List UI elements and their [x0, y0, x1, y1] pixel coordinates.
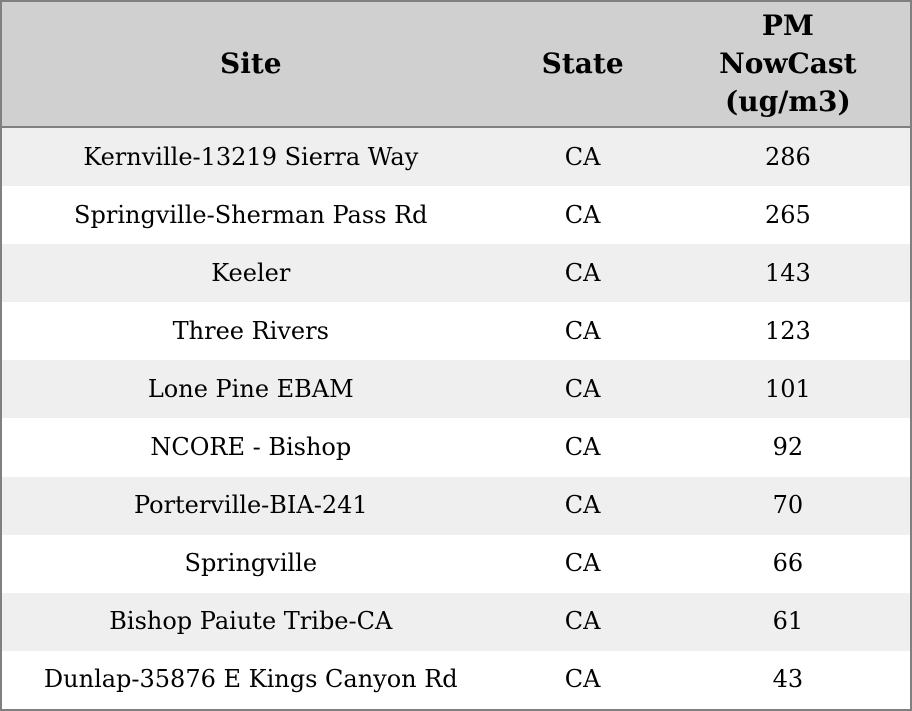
- column-header-site[interactable]: Site: [2, 2, 500, 126]
- column-header-state-label: State: [542, 45, 624, 83]
- site-cell: Springville-Sherman Pass Rd: [2, 201, 500, 230]
- table-row: Dunlap-35876 E Kings Canyon Rd CA 43: [2, 651, 910, 709]
- pm-nowcast-cell: 286: [666, 143, 910, 172]
- table-row: Springville-Sherman Pass Rd CA 265: [2, 186, 910, 244]
- state-cell: CA: [500, 433, 666, 462]
- state-cell: CA: [500, 201, 666, 230]
- column-header-state[interactable]: State: [500, 2, 666, 126]
- site-cell: Dunlap-35876 E Kings Canyon Rd: [2, 665, 500, 694]
- column-header-pm-line-3: (ug/m3): [725, 83, 851, 121]
- table-row: Keeler CA 143: [2, 244, 910, 302]
- state-cell: CA: [500, 143, 666, 172]
- pm-nowcast-cell: 92: [666, 433, 910, 462]
- state-cell: CA: [500, 375, 666, 404]
- pm-nowcast-cell: 123: [666, 317, 910, 346]
- column-header-pm-line-2: NowCast: [719, 45, 857, 83]
- column-header-site-label: Site: [220, 45, 282, 83]
- pm-nowcast-cell: 43: [666, 665, 910, 694]
- pm-nowcast-cell: 66: [666, 549, 910, 578]
- column-header-pm-nowcast[interactable]: PM NowCast (ug/m3): [666, 2, 910, 126]
- state-cell: CA: [500, 317, 666, 346]
- table-row: Three Rivers CA 123: [2, 302, 910, 360]
- site-cell: Porterville-BIA-241: [2, 491, 500, 520]
- site-pm-table: Site State PM NowCast (ug/m3) Kernville-…: [0, 0, 912, 711]
- site-cell: Lone Pine EBAM: [2, 375, 500, 404]
- state-cell: CA: [500, 665, 666, 694]
- table-body: Kernville-13219 Sierra Way CA 286 Spring…: [2, 128, 910, 709]
- table-row: NCORE - Bishop CA 92: [2, 418, 910, 476]
- state-cell: CA: [500, 491, 666, 520]
- state-cell: CA: [500, 259, 666, 288]
- site-cell: Three Rivers: [2, 317, 500, 346]
- state-cell: CA: [500, 549, 666, 578]
- pm-nowcast-cell: 70: [666, 491, 910, 520]
- site-cell: Springville: [2, 549, 500, 578]
- pm-nowcast-cell: 101: [666, 375, 910, 404]
- pm-nowcast-cell: 61: [666, 607, 910, 636]
- state-cell: CA: [500, 607, 666, 636]
- table-row: Springville CA 66: [2, 535, 910, 593]
- table-row: Lone Pine EBAM CA 101: [2, 360, 910, 418]
- column-header-pm-line-1: PM: [762, 7, 814, 45]
- pm-nowcast-cell: 143: [666, 259, 910, 288]
- table-row: Bishop Paiute Tribe-CA CA 61: [2, 593, 910, 651]
- site-cell: Keeler: [2, 259, 500, 288]
- table-row: Porterville-BIA-241 CA 70: [2, 477, 910, 535]
- table-header-row: Site State PM NowCast (ug/m3): [2, 2, 910, 128]
- table-row: Kernville-13219 Sierra Way CA 286: [2, 128, 910, 186]
- pm-nowcast-cell: 265: [666, 201, 910, 230]
- site-cell: NCORE - Bishop: [2, 433, 500, 462]
- site-cell: Kernville-13219 Sierra Way: [2, 143, 500, 172]
- site-cell: Bishop Paiute Tribe-CA: [2, 607, 500, 636]
